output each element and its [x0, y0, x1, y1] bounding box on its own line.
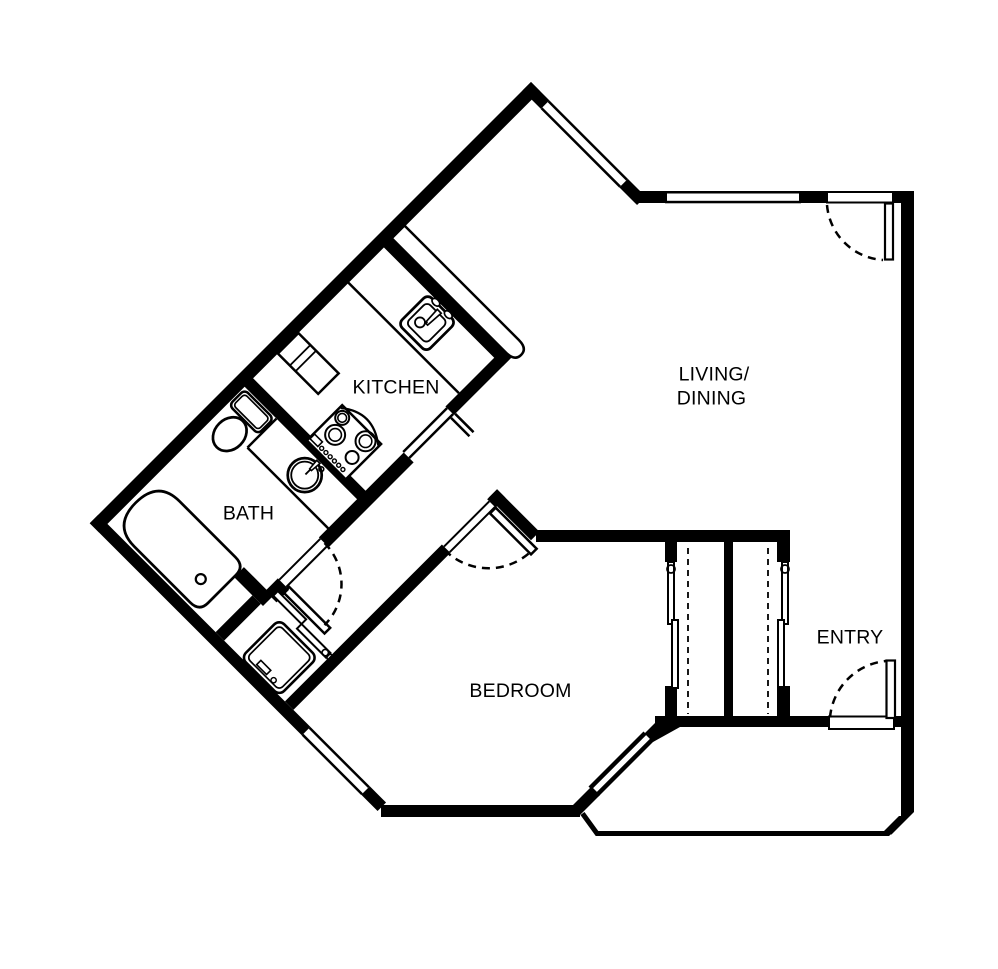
svg-text:ENTRY: ENTRY — [817, 627, 884, 649]
svg-text:LIVING/: LIVING/ — [679, 364, 750, 386]
svg-text:KITCHEN: KITCHEN — [353, 377, 440, 399]
svg-text:DINING: DINING — [677, 388, 746, 410]
svg-text:BEDROOM: BEDROOM — [469, 680, 571, 702]
svg-text:BATH: BATH — [223, 503, 274, 525]
